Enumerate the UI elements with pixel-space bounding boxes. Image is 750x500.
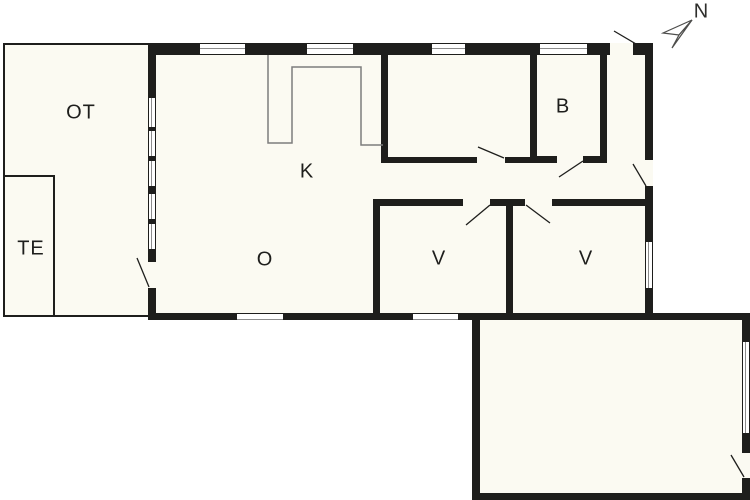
wall-bath-left	[530, 55, 537, 163]
window-bottom-1-glass	[237, 319, 283, 320]
north-arrow-icon	[663, 20, 692, 48]
floorplan-canvas: OT TE K O B V V N	[0, 0, 750, 500]
wall-bath-bottom-b	[583, 156, 607, 163]
wall-bedrooms-divider	[506, 199, 513, 320]
window-annex-right	[743, 342, 749, 433]
annex-wall-bottom	[472, 493, 750, 500]
room-label-terrace: OT	[66, 102, 96, 125]
window-left-2-glass	[151, 131, 152, 156]
window-right-bedroom-glass	[648, 242, 649, 288]
wall-hall-c	[552, 199, 645, 206]
wall-bedrooms-left	[373, 199, 380, 320]
window-left-1-glass	[151, 98, 152, 127]
window-bottom-2-glass	[413, 319, 458, 320]
window-left-1	[149, 98, 155, 127]
annex-interior	[472, 313, 750, 500]
compass-north-label: N	[694, 1, 708, 24]
window-left-5	[149, 224, 155, 249]
door-opening-bedroom-right	[525, 199, 552, 206]
window-annex-right-glass	[745, 342, 746, 433]
room-label-kitchen: K	[300, 161, 314, 184]
window-left-4-glass	[151, 194, 152, 219]
room-label-te: TE	[17, 238, 45, 261]
window-top-3-glass	[432, 48, 465, 49]
window-left-3-glass	[151, 161, 152, 186]
window-top-3	[432, 44, 465, 54]
window-top-4	[540, 44, 587, 54]
door-opening-bath	[557, 156, 583, 163]
wall-hall-a	[373, 199, 463, 206]
room-label-living: O	[257, 249, 274, 272]
room-label-bath: B	[556, 96, 570, 119]
window-right-bedroom	[646, 242, 652, 288]
window-top-4-glass	[540, 48, 587, 49]
wall-bath-bottom-a	[537, 156, 557, 163]
window-top-2-glass	[307, 48, 353, 49]
window-left-3	[149, 161, 155, 186]
house-interior	[148, 43, 653, 320]
window-top-2	[307, 44, 353, 54]
door-opening-entry	[610, 43, 633, 55]
wall-kitchen-right	[381, 55, 388, 163]
window-left-2	[149, 131, 155, 156]
annex-wall-left	[472, 313, 480, 500]
door-opening-annex	[742, 453, 750, 478]
wall-bath-right	[600, 55, 607, 163]
window-left-4	[149, 194, 155, 219]
door-opening-bedroom-left	[463, 199, 490, 206]
window-top-1	[200, 44, 245, 54]
door-opening-hall-right	[645, 160, 653, 186]
window-left-5-glass	[151, 224, 152, 249]
door-opening-terrace	[148, 262, 156, 288]
window-top-1-glass	[200, 48, 245, 49]
room-label-bedroom-left: V	[432, 248, 446, 271]
wall-bedroom-bottom-a	[381, 157, 477, 163]
room-label-bedroom-right: V	[579, 248, 593, 271]
door-opening-bedroom	[477, 157, 505, 163]
